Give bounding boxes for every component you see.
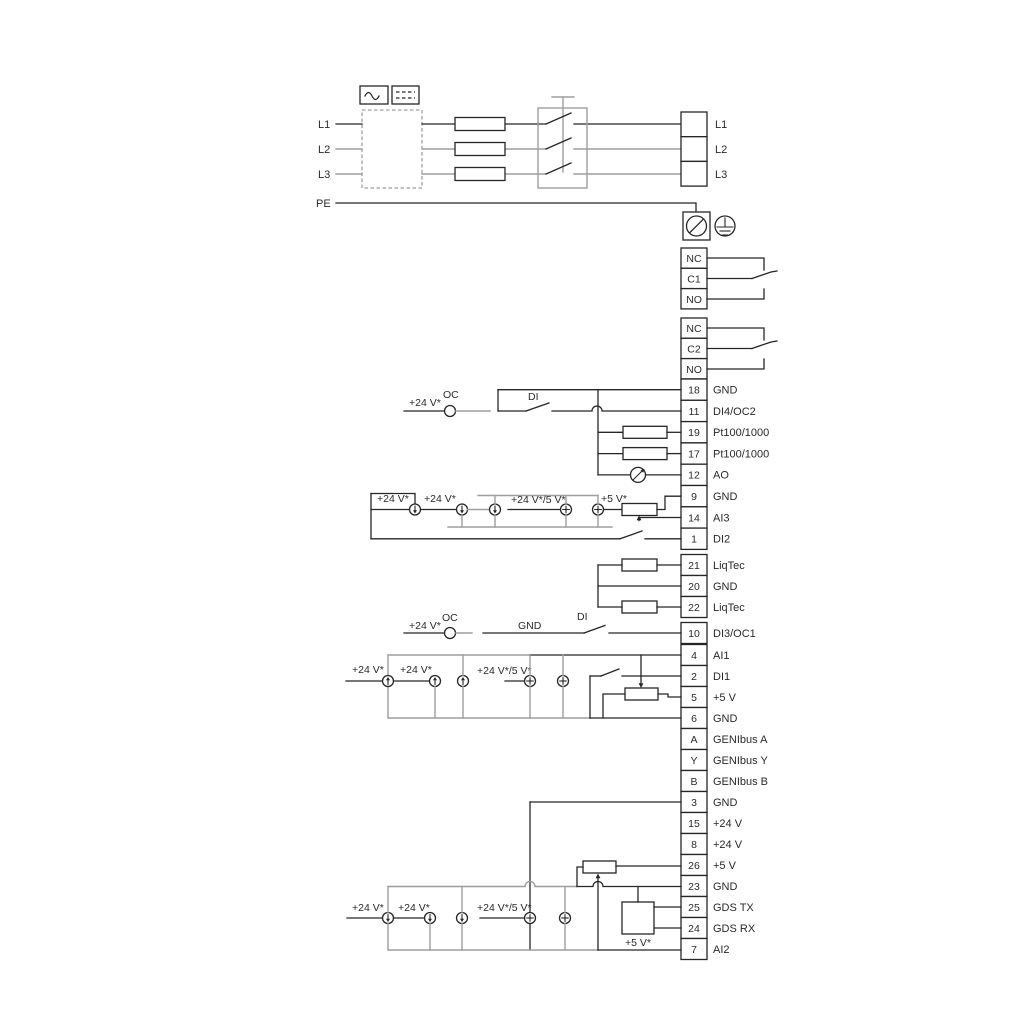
terminal-label: GND: [713, 491, 738, 503]
current-source-icon: [383, 913, 394, 924]
current-source-icon: [457, 913, 468, 924]
terminal-number: 11: [689, 406, 700, 418]
terminal-number: 14: [688, 512, 700, 524]
terminal-number: 8: [691, 839, 697, 851]
fuse-l3: [455, 168, 505, 181]
terminal-cell: [681, 112, 707, 137]
terminal-number: 5: [691, 692, 697, 704]
terminal-number: 21: [688, 560, 700, 572]
terminal-number: 6: [691, 713, 697, 725]
wiring-diagram: L1 L2 L3 PE: [0, 0, 1024, 1024]
relay1-nc: NC: [686, 253, 702, 265]
ac-symbol-box: [360, 86, 388, 104]
di3-oc-label: OC: [442, 612, 458, 624]
relay2-no: NO: [686, 364, 702, 376]
terminal-number: A: [690, 734, 697, 746]
terminal-label: DI1: [713, 671, 730, 683]
terminal-number: Y: [690, 755, 697, 767]
terminal-cell: [681, 161, 707, 186]
ai1-di1-options: +24 V* +24 V* +24 V*/5 V*: [346, 655, 681, 718]
potentiometer: [625, 688, 658, 700]
di4-oc2-wiring: +24 V* OC DI: [404, 389, 681, 482]
out-l2-label: L2: [715, 144, 727, 156]
terminal-number: 4: [691, 650, 697, 662]
relay1-c1: C1: [687, 274, 701, 286]
c-24v-label-2: +24 V*: [398, 902, 430, 914]
voltage-source-icon: [558, 676, 569, 687]
terminal-number: 3: [691, 797, 697, 809]
terminal-label: +5 V: [713, 860, 737, 872]
terminal-label: GENIbus A: [713, 734, 768, 746]
di4-oc-label: OC: [443, 389, 459, 401]
terminal-number: 10: [688, 628, 700, 640]
mains-terminal-block: L1 L2 L3: [681, 112, 727, 186]
oc-source-icon: [445, 628, 456, 639]
di3-di-label: DI: [577, 611, 588, 623]
terminal-number: 24: [688, 923, 700, 935]
terminal-number: 18: [688, 385, 700, 397]
potentiometer: [583, 861, 616, 873]
power-section: L1 L2 L3 PE: [316, 86, 735, 240]
terminal-label: +5 V: [713, 692, 737, 704]
gds-sensor-box: [622, 902, 654, 934]
a-24v-label-1: +24 V*: [377, 493, 409, 505]
di4-switch: [526, 403, 549, 411]
terminal-label: AI1: [713, 650, 730, 662]
terminal-number: 22: [688, 602, 700, 614]
earth-icon: [715, 216, 735, 236]
terminal-label: AI2: [713, 944, 730, 956]
terminal-label: LiqTec: [713, 560, 745, 572]
fuse-l2: [455, 143, 505, 156]
io2-terminal-block: 4 2 5 6 A Y B AI1 DI1 +5 V GND GENIbus A…: [681, 645, 768, 792]
terminal-number: B: [690, 776, 697, 788]
di4-di-label: DI: [528, 391, 539, 403]
terminal-number: 9: [691, 491, 697, 503]
terminal-number: 23: [688, 881, 700, 893]
terminal-number: 7: [691, 944, 697, 956]
terminal-label: GND: [713, 581, 738, 593]
terminal-label: LiqTec: [713, 602, 745, 614]
voltage-source-icon: [593, 504, 604, 515]
terminal-number: 19: [688, 427, 700, 439]
c-24v-label-1: +24 V*: [352, 902, 384, 914]
current-source-icon: [457, 504, 468, 515]
a-24v-label-2: +24 V*: [424, 493, 456, 505]
terminal-cell: [681, 137, 707, 162]
voltage-source-icon: [561, 504, 572, 515]
terminal-label: +24 V: [713, 818, 743, 830]
terminal-label: GND: [713, 713, 738, 725]
b-24v-label-1: +24 V*: [352, 664, 384, 676]
di3-24v-label: +24 V*: [409, 620, 441, 632]
out-l1-label: L1: [715, 119, 727, 131]
relay2-contact: [707, 328, 777, 369]
io3-terminal-block: 3 15 8 26 23 25 24 7 GND +24 V +24 V +5 …: [681, 792, 756, 960]
b-24v-label-2: +24 V*: [400, 664, 432, 676]
terminal-label: GENIbus B: [713, 776, 768, 788]
terminal-label: AO: [713, 470, 729, 482]
wiper-arrow-icon: [639, 683, 644, 688]
relay1-block: NC C1 NO: [681, 248, 777, 309]
current-source-icon: [410, 504, 421, 515]
relay1-contact: [707, 258, 777, 299]
voltage-source-icon: [525, 913, 536, 924]
terminal-number: 17: [688, 448, 700, 460]
ai2-gds-options: +24 V* +24 V* +24 V*/5 V* +5 V*: [347, 802, 681, 950]
terminal-label: DI3/OC1: [713, 628, 756, 640]
liqtec-sensors: [598, 559, 681, 613]
c-5v-label: +5 V*: [625, 937, 651, 949]
fuse-l1: [455, 118, 505, 131]
dc-symbol-box: [392, 86, 419, 104]
relay2-c2: C2: [687, 344, 701, 356]
pe-wiring: [336, 203, 735, 240]
voltage-source-icon: [560, 913, 571, 924]
terminal-label: DI2: [713, 534, 730, 546]
di3-gnd-label: GND: [518, 620, 542, 632]
terminal-label: +24 V: [713, 839, 743, 851]
liqtec-sensor-1: [622, 559, 657, 571]
c-24v5v-label: +24 V*/5 V*: [477, 902, 532, 914]
di2-switch: [620, 531, 642, 539]
relay2-nc: NC: [686, 323, 702, 335]
current-source-icon: [458, 676, 469, 687]
terminal-number: 2: [691, 671, 697, 683]
terminal-number: 20: [688, 581, 700, 593]
terminal-label: GDS RX: [713, 923, 756, 935]
terminal-label: GND: [713, 797, 738, 809]
voltage-source-icon: [525, 676, 536, 687]
terminal-label: Pt100/1000: [713, 448, 769, 460]
current-source-icon: [490, 504, 501, 515]
b-24v5v-label: +24 V*/5 V*: [477, 665, 532, 677]
oc-source-icon: [445, 406, 456, 417]
phase-l3-label: L3: [318, 169, 330, 181]
a-24v5v-label: +24 V*/5 V*: [511, 494, 566, 506]
di3-switch: [584, 626, 605, 634]
potentiometer: [622, 504, 657, 516]
phase-l2-label: L2: [318, 144, 330, 156]
io1-terminal-block: 18 11 19 17 12 9 14 1 GND DI4/OC2 Pt100/…: [681, 379, 769, 549]
relay1-no: NO: [686, 294, 702, 306]
terminal-number: 26: [688, 860, 700, 872]
current-source-icon: [425, 913, 436, 924]
di4-24v-label: +24 V*: [409, 397, 441, 409]
terminal-number: 25: [688, 902, 700, 914]
analog-output-meter-icon: [631, 467, 646, 482]
phase-wires: [336, 124, 681, 174]
liqtec-sensor-2: [622, 601, 657, 613]
terminal-number: 12: [688, 470, 700, 482]
pt100-sensor-2: [623, 448, 667, 460]
wiper-arrow-icon: [596, 874, 601, 879]
terminal-label: GENIbus Y: [713, 755, 768, 767]
ai3-di2-options: +24 V* +24 V* +24 V*/5 V* +5 V*: [371, 493, 681, 539]
terminal-number: 15: [688, 818, 700, 830]
terminal-label: GDS TX: [713, 902, 754, 914]
wiring-diagram-page: L1 L2 L3 PE: [0, 0, 1024, 1024]
phase-l1-label: L1: [318, 119, 330, 131]
relay2-block: NC C2 NO: [681, 318, 777, 379]
terminal-label: Pt100/1000: [713, 427, 769, 439]
current-source-icon: [383, 676, 394, 687]
current-source-icon: [430, 676, 441, 687]
terminal-number: 1: [691, 534, 697, 546]
terminal-label: AI3: [713, 512, 730, 524]
pe-label: PE: [316, 198, 331, 210]
terminal-label: DI4/OC2: [713, 406, 756, 418]
filter-box: [362, 110, 422, 188]
liqtec-terminal-block: 21 20 22 LiqTec GND LiqTec: [598, 555, 745, 618]
out-l3-label: L3: [715, 169, 727, 181]
terminal-label: GND: [713, 881, 738, 893]
di1-switch: [601, 669, 619, 676]
terminal-label: GND: [713, 385, 738, 397]
pt100-sensor-1: [623, 426, 667, 438]
